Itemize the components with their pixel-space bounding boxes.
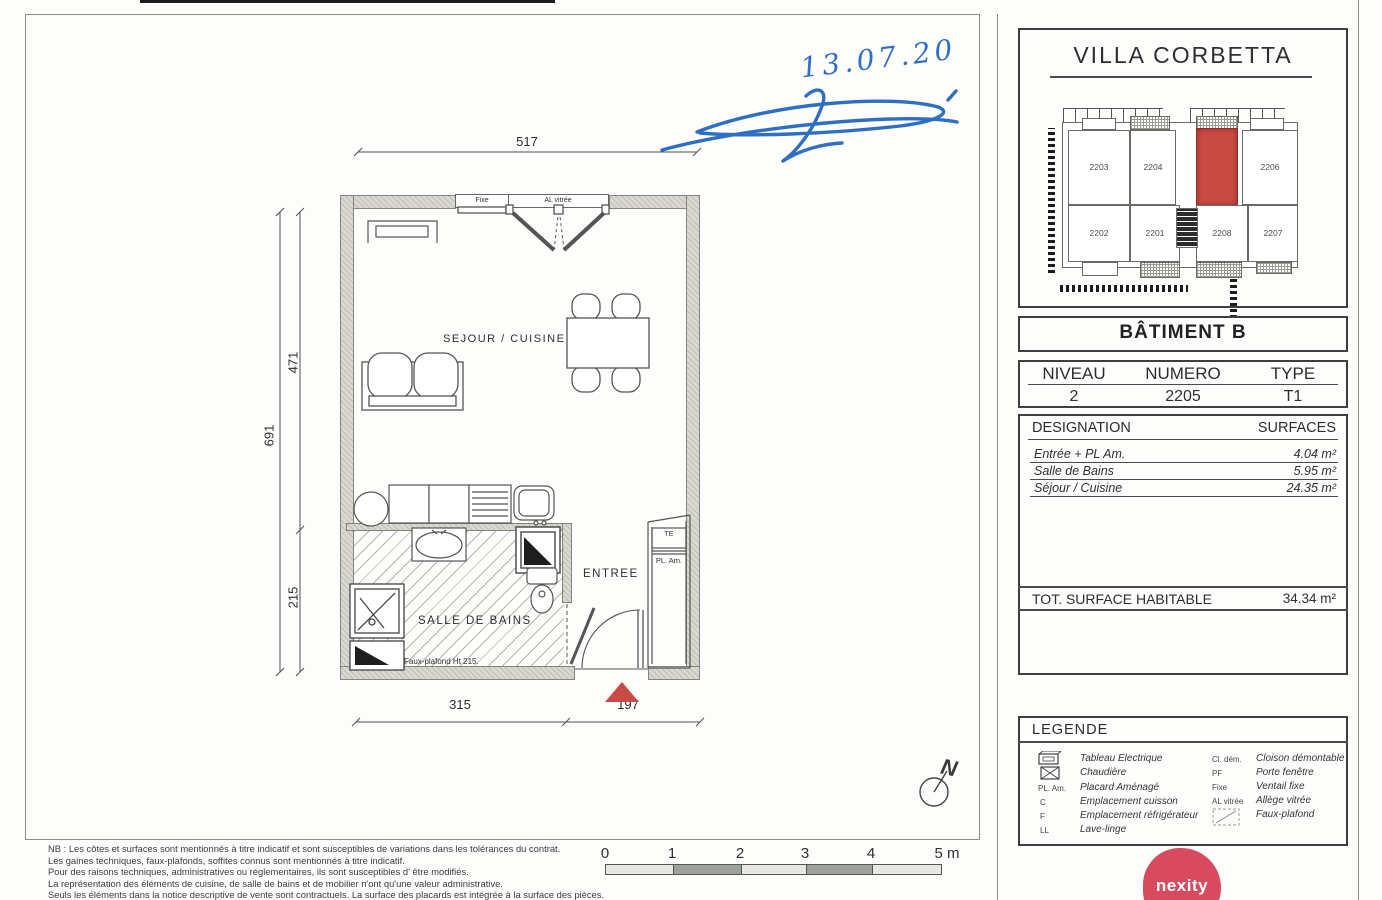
dim-left-471: 471 <box>285 352 300 374</box>
dim-bottom-197: 197 <box>598 697 658 712</box>
cooking-label: C <box>432 487 437 494</box>
scale-segment-dark <box>806 865 872 874</box>
panel-right-border <box>1358 0 1359 900</box>
site-unit-2206-label: 2206 <box>1242 162 1298 172</box>
legend-label: Faux-plafond <box>1256 809 1314 820</box>
total-surface-value: 34.34 m² <box>1248 591 1336 606</box>
total-row-bottomline <box>1018 609 1348 611</box>
wall-right <box>686 195 700 680</box>
surface-row-underline <box>1030 462 1338 463</box>
te-label: TE <box>652 531 686 538</box>
info-value-type: T1 <box>1248 388 1338 406</box>
site-unit-2201-label: 2201 <box>1130 228 1180 238</box>
legend-symbol: PF <box>1212 769 1222 778</box>
legend-symbol: C <box>1040 798 1046 807</box>
info-value-niveau: 2 <box>1024 388 1124 406</box>
dim-left-691: 691 <box>261 425 276 447</box>
surface-row-value: 24.35 m² <box>1236 481 1336 495</box>
pl-am-label: PL. Am. <box>648 556 690 565</box>
scale-segment-light <box>741 865 806 874</box>
wall-kitchen-bath <box>346 523 570 531</box>
info-header-underline <box>1028 384 1338 385</box>
bathroom-floor-hatch <box>354 531 564 666</box>
note-line: NB : Les côtes et surfaces sont mentionn… <box>48 843 608 855</box>
lv-label: LV <box>482 486 492 493</box>
info-header-type: TYPE <box>1248 364 1338 384</box>
dim-left-215: 215 <box>285 587 300 609</box>
info-value-numero: 2205 <box>1133 388 1233 406</box>
info-header-numero: NUMERO <box>1133 364 1233 384</box>
scale-segment-light <box>872 865 941 874</box>
surfaces-header-designation: DESIGNATION <box>1032 420 1131 436</box>
legend-label: Lave-linge <box>1080 824 1126 835</box>
site-unit-2202-label: 2202 <box>1068 228 1130 238</box>
note-line: Pour des raisons techniques, administrat… <box>48 866 608 878</box>
sejour-cuisine-label: SEJOUR / CUISINE <box>443 333 565 345</box>
residence-title: VILLA CORBETTA <box>1018 42 1348 69</box>
chaudiere-icon <box>1040 766 1060 780</box>
site-vegetation-bottom <box>1060 285 1188 292</box>
wall-bottom-right <box>648 666 700 680</box>
dim-bottom-315: 315 <box>430 697 490 712</box>
info-header-niveau: NIVEAU <box>1024 364 1124 384</box>
legend-symbol: Cl. dém. <box>1212 755 1242 764</box>
total-row-topline <box>1018 586 1348 588</box>
wall-bottom-left <box>340 666 575 680</box>
panel-separator <box>997 14 998 900</box>
nexity-logo-text: nexity <box>1143 876 1221 896</box>
site-unit-2203-label: 2203 <box>1068 162 1130 172</box>
balcony <box>1196 262 1242 278</box>
legend-title: LEGENDE <box>1032 722 1108 738</box>
surface-row-underline <box>1030 479 1338 480</box>
balcony <box>1082 118 1116 130</box>
legend-title-underline <box>1018 741 1348 743</box>
site-unit-2204-label: 2204 <box>1130 162 1176 172</box>
legend-symbol: Fixe <box>1212 783 1227 792</box>
tableau-electrique-icon <box>1038 751 1062 765</box>
window-label-divider <box>508 194 509 208</box>
surfaces-header-surfaces: SURFACES <box>1228 420 1336 436</box>
scale-bar <box>605 864 942 875</box>
residence-title-underline <box>1050 76 1312 78</box>
legend-label: Emplacement réfrigérateur <box>1080 810 1198 821</box>
faux-plafond-icon <box>1212 808 1240 826</box>
site-unit-2205-highlight <box>1196 128 1238 206</box>
balcony <box>1256 262 1292 274</box>
notes-block: NB : Les côtes et surfaces sont mentionn… <box>48 843 608 900</box>
site-unit-2207-label: 2207 <box>1248 228 1298 238</box>
site-unit-2208-label: 2208 <box>1196 228 1248 238</box>
legend-symbol: LL <box>1040 826 1049 835</box>
site-stairwell <box>1176 208 1198 248</box>
note-line: Seuls les éléments dans la notice descri… <box>48 889 608 900</box>
legend-label: Porte fenêtre <box>1256 767 1314 778</box>
legend-label: Cloison démontable <box>1256 753 1344 764</box>
faux-plafond-label: Faux-plafond Ht 215. <box>404 657 479 666</box>
window-fixe-label: Fixe <box>458 197 506 204</box>
legend-label: Ventail fixe <box>1256 781 1305 792</box>
scale-segment-dark <box>673 865 741 874</box>
surface-row-value: 4.04 m² <box>1236 447 1336 461</box>
dim-top-517: 517 <box>497 134 557 149</box>
note-line: La représentation des éléments de cuisin… <box>48 878 608 890</box>
surface-row-name: Séjour / Cuisine <box>1034 481 1122 495</box>
scale-tick-5: 5 m <box>925 845 969 862</box>
site-vegetation-left <box>1048 128 1055 273</box>
scale-tick-4: 4 <box>856 845 886 862</box>
scanned-floor-plan-sheet: Fixe AL vitrée SEJOUR / CUISINE SALLE DE… <box>0 0 1382 900</box>
surface-row-name: Salle de Bains <box>1034 464 1114 478</box>
surface-row-name: Entrée + PL Am. <box>1034 447 1125 461</box>
legend-label: Chaudière <box>1080 767 1126 778</box>
legend-label: Allège vitrée <box>1256 795 1311 806</box>
cu-label: CU <box>361 504 381 511</box>
batiment-title: BÂTIMENT B <box>1018 322 1348 344</box>
balcony <box>1082 262 1118 276</box>
wall-left <box>340 195 354 680</box>
wall-top-left <box>340 195 456 209</box>
scale-tick-1: 1 <box>657 845 687 862</box>
window-al-vitree-label: AL vitrée <box>510 197 606 204</box>
legend-symbol: AL vitrée <box>1212 797 1243 806</box>
legend-symbol: PL. Am. <box>1038 784 1066 793</box>
legend-symbol: F <box>1040 812 1045 821</box>
surface-row-value: 5.95 m² <box>1236 464 1336 478</box>
fridge-label: F <box>393 487 397 494</box>
scale-tick-0: 0 <box>590 845 620 862</box>
legend-label: Tableau Electrique <box>1080 753 1162 764</box>
scale-tick-2: 2 <box>725 845 755 862</box>
entree-label: ENTREE <box>583 568 639 580</box>
legend-label: Placard Aménagé <box>1080 782 1159 793</box>
balcony <box>1250 118 1284 130</box>
salle-de-bains-label: SALLE DE BAINS <box>418 615 532 627</box>
balcony <box>1130 116 1170 130</box>
surfaces-header-underline <box>1028 439 1338 440</box>
scale-tick-3: 3 <box>790 845 820 862</box>
note-line: Les gaines techniques, faux-plafonds, so… <box>48 855 608 867</box>
total-surface-label: TOT. SURFACE HABITABLE <box>1032 591 1212 607</box>
balcony <box>1140 262 1180 278</box>
surface-row-underline <box>1030 496 1338 497</box>
scan-artifact-line <box>140 0 555 3</box>
legend-label: Emplacement cuisson <box>1080 796 1178 807</box>
